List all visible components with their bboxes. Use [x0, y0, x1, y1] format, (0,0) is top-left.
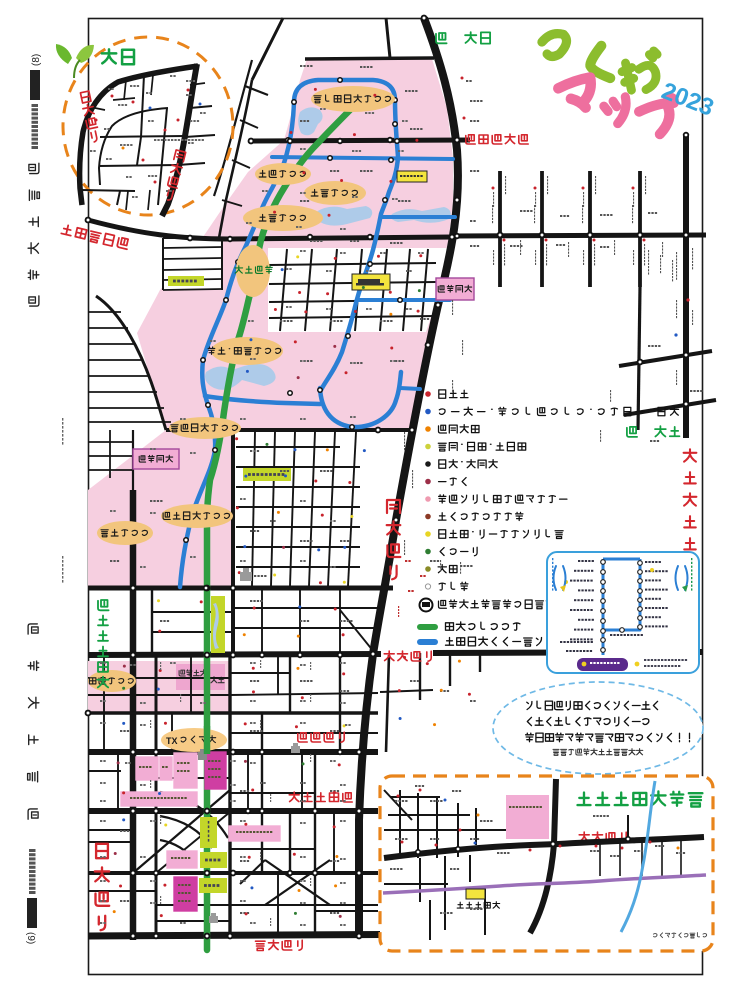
svg-text:(9): (9): [25, 932, 36, 944]
svg-text:TX: TX: [166, 736, 178, 746]
svg-text:(8): (8): [31, 54, 42, 66]
